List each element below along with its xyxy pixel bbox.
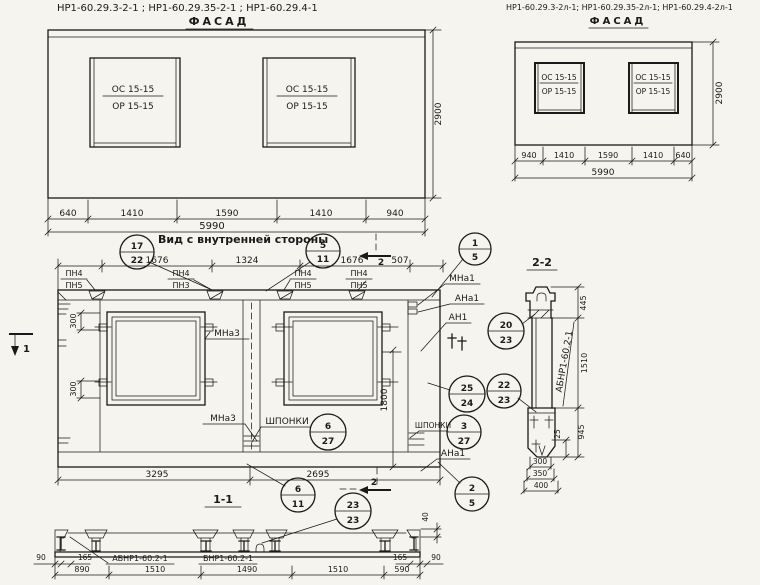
dim-value: 1510 xyxy=(145,565,165,574)
balloon-top: 23 xyxy=(347,501,360,511)
embed-plate xyxy=(276,379,284,386)
dim-value: 40 xyxy=(421,512,430,522)
steel-profile xyxy=(239,541,249,551)
dim-value: 1410 xyxy=(310,209,333,219)
window-mark-bottom: ОР 15-15 xyxy=(542,87,577,96)
dimension-line xyxy=(58,467,440,485)
window-left: ОС 15-15 ОР 15-15 xyxy=(90,58,180,147)
dim-value: 3295 xyxy=(146,470,169,480)
keys-label-right: ШПОНКИ xyxy=(410,421,451,438)
cut-label: 2 xyxy=(378,258,384,268)
embed-axis-ticks xyxy=(95,327,217,382)
mark-leader xyxy=(203,424,257,441)
cut-label: 2 xyxy=(371,478,377,488)
steel-profile xyxy=(201,541,211,551)
window-frame-inner xyxy=(112,317,200,400)
dim-value: 350 xyxy=(533,469,548,478)
balloon-top: 6 xyxy=(325,422,331,432)
dim-height: 2900 xyxy=(715,81,725,104)
anchor-symbols xyxy=(448,334,466,350)
dimension-height: 2900 xyxy=(692,39,725,148)
balloon-bottom: 11 xyxy=(292,500,305,510)
dim-value: 640 xyxy=(675,151,690,160)
dim-value: 165 xyxy=(78,553,93,562)
dimension-300-bottom: 300 xyxy=(69,378,100,401)
dim-value: 1676 xyxy=(341,256,364,266)
dim-total: 5990 xyxy=(592,168,615,178)
embed-plate xyxy=(205,379,213,386)
keys-label: ШПОНКИ xyxy=(265,417,308,427)
balloon-bottom: 23 xyxy=(347,516,360,526)
mark-an1: АН1 xyxy=(421,313,471,351)
dim-value: 90 xyxy=(36,553,46,562)
panel-codes-left: НР1-60.29.3-2-1 ; НР1-60.29.35-2-1 ; НР1… xyxy=(57,3,318,14)
balloon-top: 2 xyxy=(469,484,475,494)
bottom-shoe-profile xyxy=(528,408,555,457)
balloon-22-23: 22 23 xyxy=(487,374,536,412)
balloon-bottom: 11 xyxy=(317,255,330,265)
top-hook-profile xyxy=(526,287,555,318)
steel-profile xyxy=(92,541,100,551)
view-title-fasad-left: ФАСАД xyxy=(189,15,250,28)
mark-mna3-right: МНа3 xyxy=(203,414,257,441)
dim-value: 165 xyxy=(393,553,408,562)
pn-bottom: ПН3 xyxy=(172,281,189,290)
window-frame-inner2 xyxy=(293,321,373,396)
dim-value: 300 xyxy=(69,381,78,396)
right-rib-embed xyxy=(408,302,417,307)
mark-leader xyxy=(418,304,484,312)
balloon-3-27: 3 27 xyxy=(447,415,481,449)
bottom-shoe-details xyxy=(528,413,555,455)
panel-codes-right: НР1-60.29.3-2л-1; НР1-60.29.35-2л-1; НР1… xyxy=(506,3,733,12)
dim-value: 1410 xyxy=(554,151,574,160)
inner-view-title: Вид с внутренней стороны xyxy=(158,233,328,246)
dim-value: 1324 xyxy=(236,256,259,266)
stem-outline xyxy=(532,318,552,408)
balloon-top: 5 xyxy=(320,241,326,251)
dim-value: 1510 xyxy=(580,353,589,373)
embed-plate xyxy=(382,379,390,386)
section-title: 2-2 xyxy=(532,256,552,269)
view-title-fasad-right: ФАСАД xyxy=(590,16,647,27)
window-mark-bottom: ОР 15-15 xyxy=(636,87,671,96)
panel-outline xyxy=(58,290,440,467)
balloon-bottom: 27 xyxy=(458,437,471,447)
balloon-20-23: 20 23 xyxy=(488,313,535,349)
balloon-top: 22 xyxy=(498,381,511,391)
window-mark-top: ОС 15-15 xyxy=(635,73,671,82)
dim-value: 940 xyxy=(521,151,536,160)
dim-value: 1410 xyxy=(643,151,663,160)
balloon-bottom: 5 xyxy=(469,499,475,509)
dimension-chain-bottom: 3295 2695 xyxy=(55,467,443,485)
pn-mark-1: ПН4 ПН5 xyxy=(61,269,95,290)
dim-value: 890 xyxy=(74,565,89,574)
dim-value: 1800 xyxy=(380,388,390,411)
section-cut-1: 1 xyxy=(10,334,32,356)
embed-plate xyxy=(205,324,213,331)
balloon-top: 6 xyxy=(295,485,301,495)
facade-right: НР1-60.29.3-2л-1; НР1-60.29.35-2л-1; НР1… xyxy=(506,3,733,181)
steel-profile xyxy=(270,541,280,551)
balloon-bottom: 23 xyxy=(500,336,513,346)
window-mark-top: ОС 15-15 xyxy=(286,85,328,95)
mark-abnr: АБНР1-60.2-1 xyxy=(555,330,576,393)
keys-leader xyxy=(410,431,448,438)
embed-axis-ticks xyxy=(272,327,398,382)
dimension-line xyxy=(77,378,100,401)
panel-outline xyxy=(48,30,425,198)
mark-ana1-top: АНа1 xyxy=(418,294,484,312)
pn-top: ПН4 xyxy=(65,269,82,278)
balloon-top: 1 xyxy=(472,239,478,249)
section-cut-2-top: 2 xyxy=(359,234,390,268)
dim-total: 5990 xyxy=(199,221,224,232)
balloon-divider-leader xyxy=(438,462,488,494)
embed-plate xyxy=(276,324,284,331)
dimension-300-top: 300 xyxy=(69,310,100,333)
pn-bottom: ПН5 xyxy=(294,281,311,290)
dim-value: 1410 xyxy=(121,209,144,219)
pn-top: ПН4 xyxy=(294,269,311,278)
balloon-divider-leader xyxy=(428,383,484,394)
steel-profile xyxy=(57,537,65,550)
dim-value: 1510 xyxy=(328,565,348,574)
window-frame xyxy=(284,312,382,405)
dim-value: 2695 xyxy=(307,470,330,480)
dimension-chain-bottom: 940 1410 1590 1410 640 5990 xyxy=(512,145,695,181)
facade-left: НР1-60.29.3-2-1 ; НР1-60.29.35-2-1 ; НР1… xyxy=(45,3,444,236)
top-hook-details xyxy=(528,293,553,318)
mark-label: БНР1-60.2-1 xyxy=(203,554,253,563)
dimension-line xyxy=(77,310,100,333)
balloon-2-5: 2 5 xyxy=(438,462,489,511)
dim-value: 25 xyxy=(553,429,562,439)
balloon-bottom: 22 xyxy=(131,256,144,266)
right-rib-embed xyxy=(408,309,417,314)
window-right: ОС 15-15 ОР 15-15 xyxy=(629,63,678,113)
cut-arrow xyxy=(11,346,19,356)
engineering-drawing-sheet: НР1-60.29.3-2-1 ; НР1-60.29.35-2-1 ; НР1… xyxy=(0,0,760,585)
balloon-bottom: 24 xyxy=(461,399,474,409)
pn-top: ПН4 xyxy=(172,269,189,278)
window-frame xyxy=(107,312,205,405)
pn-top: ПН4 xyxy=(350,269,367,278)
dim-value: 1676 xyxy=(146,256,169,266)
mark-mna3-left: МНа3 xyxy=(205,329,249,339)
dim-value: 445 xyxy=(579,295,588,310)
balloon-top: 20 xyxy=(500,321,513,331)
dim-value: 90 xyxy=(431,553,441,562)
window-mark-top: ОС 15-15 xyxy=(541,73,577,82)
dimension-chain-bottom: 300 350 400 xyxy=(521,457,561,494)
balloon-top: 25 xyxy=(461,384,474,394)
window-left: ОС 15-15 ОР 15-15 xyxy=(535,63,584,113)
section-2-2: 2-2 АБНР1-60.2-1 445 1510 945 25 300 350 xyxy=(521,256,589,494)
keys-label-left: ШПОНКИ xyxy=(252,417,310,442)
balloon-bottom: 23 xyxy=(498,396,511,406)
window-mark-top: ОС 15-15 xyxy=(112,85,154,95)
mark-label: АБНР1-60.2-1 xyxy=(112,554,168,563)
joint-notch xyxy=(256,544,264,552)
dimension-1800: 1800 xyxy=(380,347,401,470)
section-1-1: 1-1 6 11 23 23 2 5 xyxy=(34,462,489,579)
balloon-25-24: 25 24 xyxy=(428,376,485,412)
balloon-bottom: 5 xyxy=(472,253,478,263)
dim-value: 640 xyxy=(59,209,76,219)
dim-value: 590 xyxy=(394,565,409,574)
section-cut-2-bottom: 2 xyxy=(340,468,390,494)
dim-value: 1590 xyxy=(598,151,618,160)
mark-label: МНа1 xyxy=(449,274,475,284)
window-frame-inner xyxy=(289,317,377,400)
dim-value: 300 xyxy=(533,457,548,466)
dim-value: 400 xyxy=(534,481,549,490)
balloon-6-11: 6 11 xyxy=(247,464,315,512)
joint-trapezoids xyxy=(89,291,365,299)
pn-mark-4: ПН4 ПН5 xyxy=(346,269,372,290)
dim-value: 300 xyxy=(69,313,78,328)
balloon-bottom: 27 xyxy=(322,437,335,447)
balloon-top: 17 xyxy=(131,242,144,252)
dim-height: 2900 xyxy=(434,102,444,125)
dimension-height: 2900 xyxy=(425,27,444,201)
window-left xyxy=(95,312,217,405)
dim-value: 1490 xyxy=(237,565,257,574)
mark-leader xyxy=(421,323,471,351)
mark-label: АНа1 xyxy=(441,449,465,459)
dim-value: 507 xyxy=(391,256,408,266)
dimension-chain-bottom: 640 1410 1590 1410 940 5990 xyxy=(45,198,428,236)
window-frame-inner2 xyxy=(116,321,196,396)
dim-value: 940 xyxy=(386,209,403,219)
balloon-23-23: 23 23 xyxy=(262,493,371,543)
dimension-40: 40 xyxy=(421,512,441,543)
balloon-divider-leader xyxy=(488,391,536,412)
window-mark-bottom: ОР 15-15 xyxy=(112,102,154,112)
cut-arrow xyxy=(359,486,368,494)
mark-bnr: БНР1-60.2-1 xyxy=(199,554,257,564)
mark-label: АНа1 xyxy=(455,294,479,304)
steel-profile xyxy=(380,541,390,551)
mark-label: АН1 xyxy=(449,313,468,323)
section-title: 1-1 xyxy=(213,493,233,506)
dim-value: 1590 xyxy=(216,209,239,219)
pn-mark-3: ПН4 ПН5 xyxy=(284,269,316,290)
window-right: ОС 15-15 ОР 15-15 xyxy=(263,58,355,147)
embed-plate xyxy=(382,324,390,331)
keys-leader xyxy=(252,427,310,442)
mark-label: МНа3 xyxy=(210,414,236,424)
balloon-6-27: 6 27 xyxy=(310,414,346,450)
keys-label: ШПОНКИ xyxy=(415,421,451,430)
steel-profile xyxy=(410,537,418,550)
mark-label: МНа3 xyxy=(214,329,240,339)
cut-label: 1 xyxy=(23,344,30,355)
pn-bottom: ПН5 xyxy=(65,281,82,290)
window-mark-bottom: ОР 15-15 xyxy=(286,102,328,112)
balloon-top: 3 xyxy=(461,422,467,432)
pn-bottom: ПН5 xyxy=(350,281,367,290)
inner-view: Вид с внутренней стороны 17 22 5 11 1 5 … xyxy=(10,233,536,494)
dimension-line xyxy=(421,523,441,543)
dim-value: 945 xyxy=(577,424,586,439)
dimension-chain-top: 1676 1324 1676 507 xyxy=(55,256,446,290)
